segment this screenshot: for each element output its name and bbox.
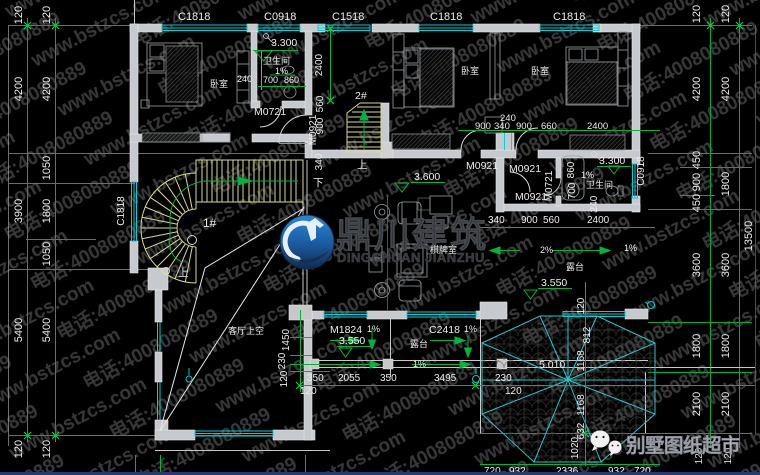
svg-text:120: 120 (41, 6, 53, 24)
svg-text:1050: 1050 (41, 242, 53, 266)
svg-text:900: 900 (315, 117, 326, 134)
svg-text:450: 450 (691, 151, 703, 169)
svg-text:M1824: M1824 (330, 324, 362, 336)
svg-text:2400: 2400 (587, 121, 608, 132)
svg-text:M0921: M0921 (509, 163, 541, 175)
svg-text:客厅上空: 客厅上空 (228, 325, 264, 336)
svg-text:13500: 13500 (743, 221, 755, 252)
svg-text:2%: 2% (540, 245, 553, 255)
svg-text:1050: 1050 (41, 156, 53, 180)
svg-text:3.300: 3.300 (599, 155, 625, 167)
svg-text:700: 700 (567, 182, 578, 199)
svg-text:632: 632 (576, 422, 587, 439)
svg-text:3.600: 3.600 (414, 171, 440, 183)
svg-text:4200: 4200 (13, 77, 25, 101)
svg-text:卫生间: 卫生间 (263, 55, 290, 66)
svg-text:350: 350 (380, 373, 397, 384)
svg-text:120: 120 (13, 440, 25, 458)
svg-text:C0918: C0918 (264, 11, 296, 23)
svg-text:4200: 4200 (691, 77, 703, 101)
svg-text:露台: 露台 (410, 338, 428, 349)
svg-text:4200: 4200 (720, 77, 732, 101)
svg-text:1020: 1020 (570, 436, 581, 459)
svg-text:卧室: 卧室 (531, 65, 549, 76)
svg-text:3.300: 3.300 (271, 37, 297, 49)
svg-text:棋牌室: 棋牌室 (430, 244, 457, 255)
svg-text:5.010: 5.010 (539, 359, 565, 371)
svg-text:卧室: 卧室 (461, 65, 479, 76)
svg-text:240: 240 (237, 74, 252, 84)
svg-text:1168: 1168 (576, 350, 587, 372)
svg-text:下: 下 (313, 177, 324, 189)
svg-text:450: 450 (691, 194, 703, 212)
svg-text:4200: 4200 (41, 77, 53, 101)
svg-text:900: 900 (516, 121, 532, 132)
svg-text:812: 812 (582, 326, 593, 343)
svg-text:1168: 1168 (576, 394, 587, 416)
svg-text:1%: 1% (367, 324, 380, 334)
svg-text:2055: 2055 (338, 373, 361, 384)
svg-text:120: 120 (279, 370, 290, 387)
svg-text:120: 120 (576, 297, 587, 314)
svg-text:M0721: M0721 (254, 106, 286, 118)
svg-text:120: 120 (13, 6, 25, 24)
svg-text:1%: 1% (464, 324, 477, 334)
svg-text:1%: 1% (581, 170, 594, 180)
svg-text:1800: 1800 (41, 199, 53, 223)
svg-text:560: 560 (543, 215, 560, 226)
svg-text:240: 240 (589, 195, 600, 212)
svg-text:1800: 1800 (720, 334, 732, 358)
svg-text:3495: 3495 (434, 373, 457, 384)
svg-text:2100: 2100 (691, 392, 703, 416)
svg-text:C1518: C1518 (332, 11, 364, 23)
svg-text:860: 860 (566, 161, 577, 178)
svg-text:M0921: M0921 (515, 191, 547, 203)
svg-text:3.550: 3.550 (541, 277, 567, 289)
svg-text:C2418: C2418 (429, 324, 460, 336)
svg-text:120: 120 (691, 5, 703, 23)
svg-text:900: 900 (521, 215, 538, 226)
svg-text:560: 560 (315, 95, 326, 112)
svg-text:M0921: M0921 (466, 160, 498, 172)
svg-text:5400: 5400 (41, 318, 53, 342)
svg-text:2#: 2# (355, 90, 367, 102)
svg-text:340: 340 (494, 121, 510, 132)
svg-text:120: 120 (300, 386, 317, 397)
svg-text:340: 340 (314, 153, 325, 170)
svg-text:3600: 3600 (720, 253, 732, 277)
svg-text:900: 900 (475, 121, 491, 132)
svg-text:C0918: C0918 (636, 156, 647, 186)
svg-text:C1818: C1818 (178, 11, 210, 23)
svg-text:卧室: 卧室 (210, 78, 228, 89)
svg-text:C1818: C1818 (553, 11, 585, 23)
svg-text:120: 120 (505, 386, 522, 397)
svg-text:120: 120 (720, 5, 732, 23)
svg-text:230: 230 (277, 352, 288, 369)
svg-text:2400: 2400 (314, 53, 325, 76)
svg-text:5400: 5400 (13, 318, 25, 342)
svg-text:660: 660 (541, 121, 557, 132)
svg-text:1800: 1800 (691, 334, 703, 358)
svg-text:C1818: C1818 (430, 11, 462, 23)
svg-text:别墅图纸超市: 别墅图纸超市 (625, 434, 740, 457)
svg-text:上: 上 (357, 159, 368, 171)
svg-text:860: 860 (284, 75, 299, 85)
svg-text:350: 350 (307, 373, 324, 384)
svg-text:DINGCHUAN JIANZHU: DINGCHUAN JIANZHU (337, 250, 485, 265)
svg-text:900: 900 (691, 173, 703, 191)
svg-text:上: 上 (178, 267, 189, 279)
svg-text:1800: 1800 (720, 172, 732, 196)
svg-text:露台: 露台 (566, 261, 584, 272)
svg-text:700: 700 (263, 75, 278, 85)
svg-text:3.550: 3.550 (339, 335, 365, 347)
svg-text:340: 340 (488, 215, 505, 226)
svg-text:卫生间: 卫生间 (586, 179, 613, 190)
svg-text:3900: 3900 (13, 199, 25, 223)
svg-text:2400: 2400 (587, 215, 610, 226)
svg-text:M0721: M0721 (544, 170, 555, 201)
svg-text:3600: 3600 (691, 253, 703, 277)
svg-text:1#: 1# (203, 216, 217, 230)
svg-text:1%: 1% (413, 359, 426, 369)
svg-text:1450: 1450 (281, 328, 292, 351)
svg-text:230: 230 (495, 373, 512, 384)
svg-text:鼎川建筑: 鼎川建筑 (336, 214, 488, 255)
svg-text:C1818: C1818 (116, 196, 127, 226)
svg-text:2100: 2100 (720, 392, 732, 416)
svg-text:1%: 1% (624, 243, 637, 253)
svg-text:120: 120 (41, 440, 53, 458)
